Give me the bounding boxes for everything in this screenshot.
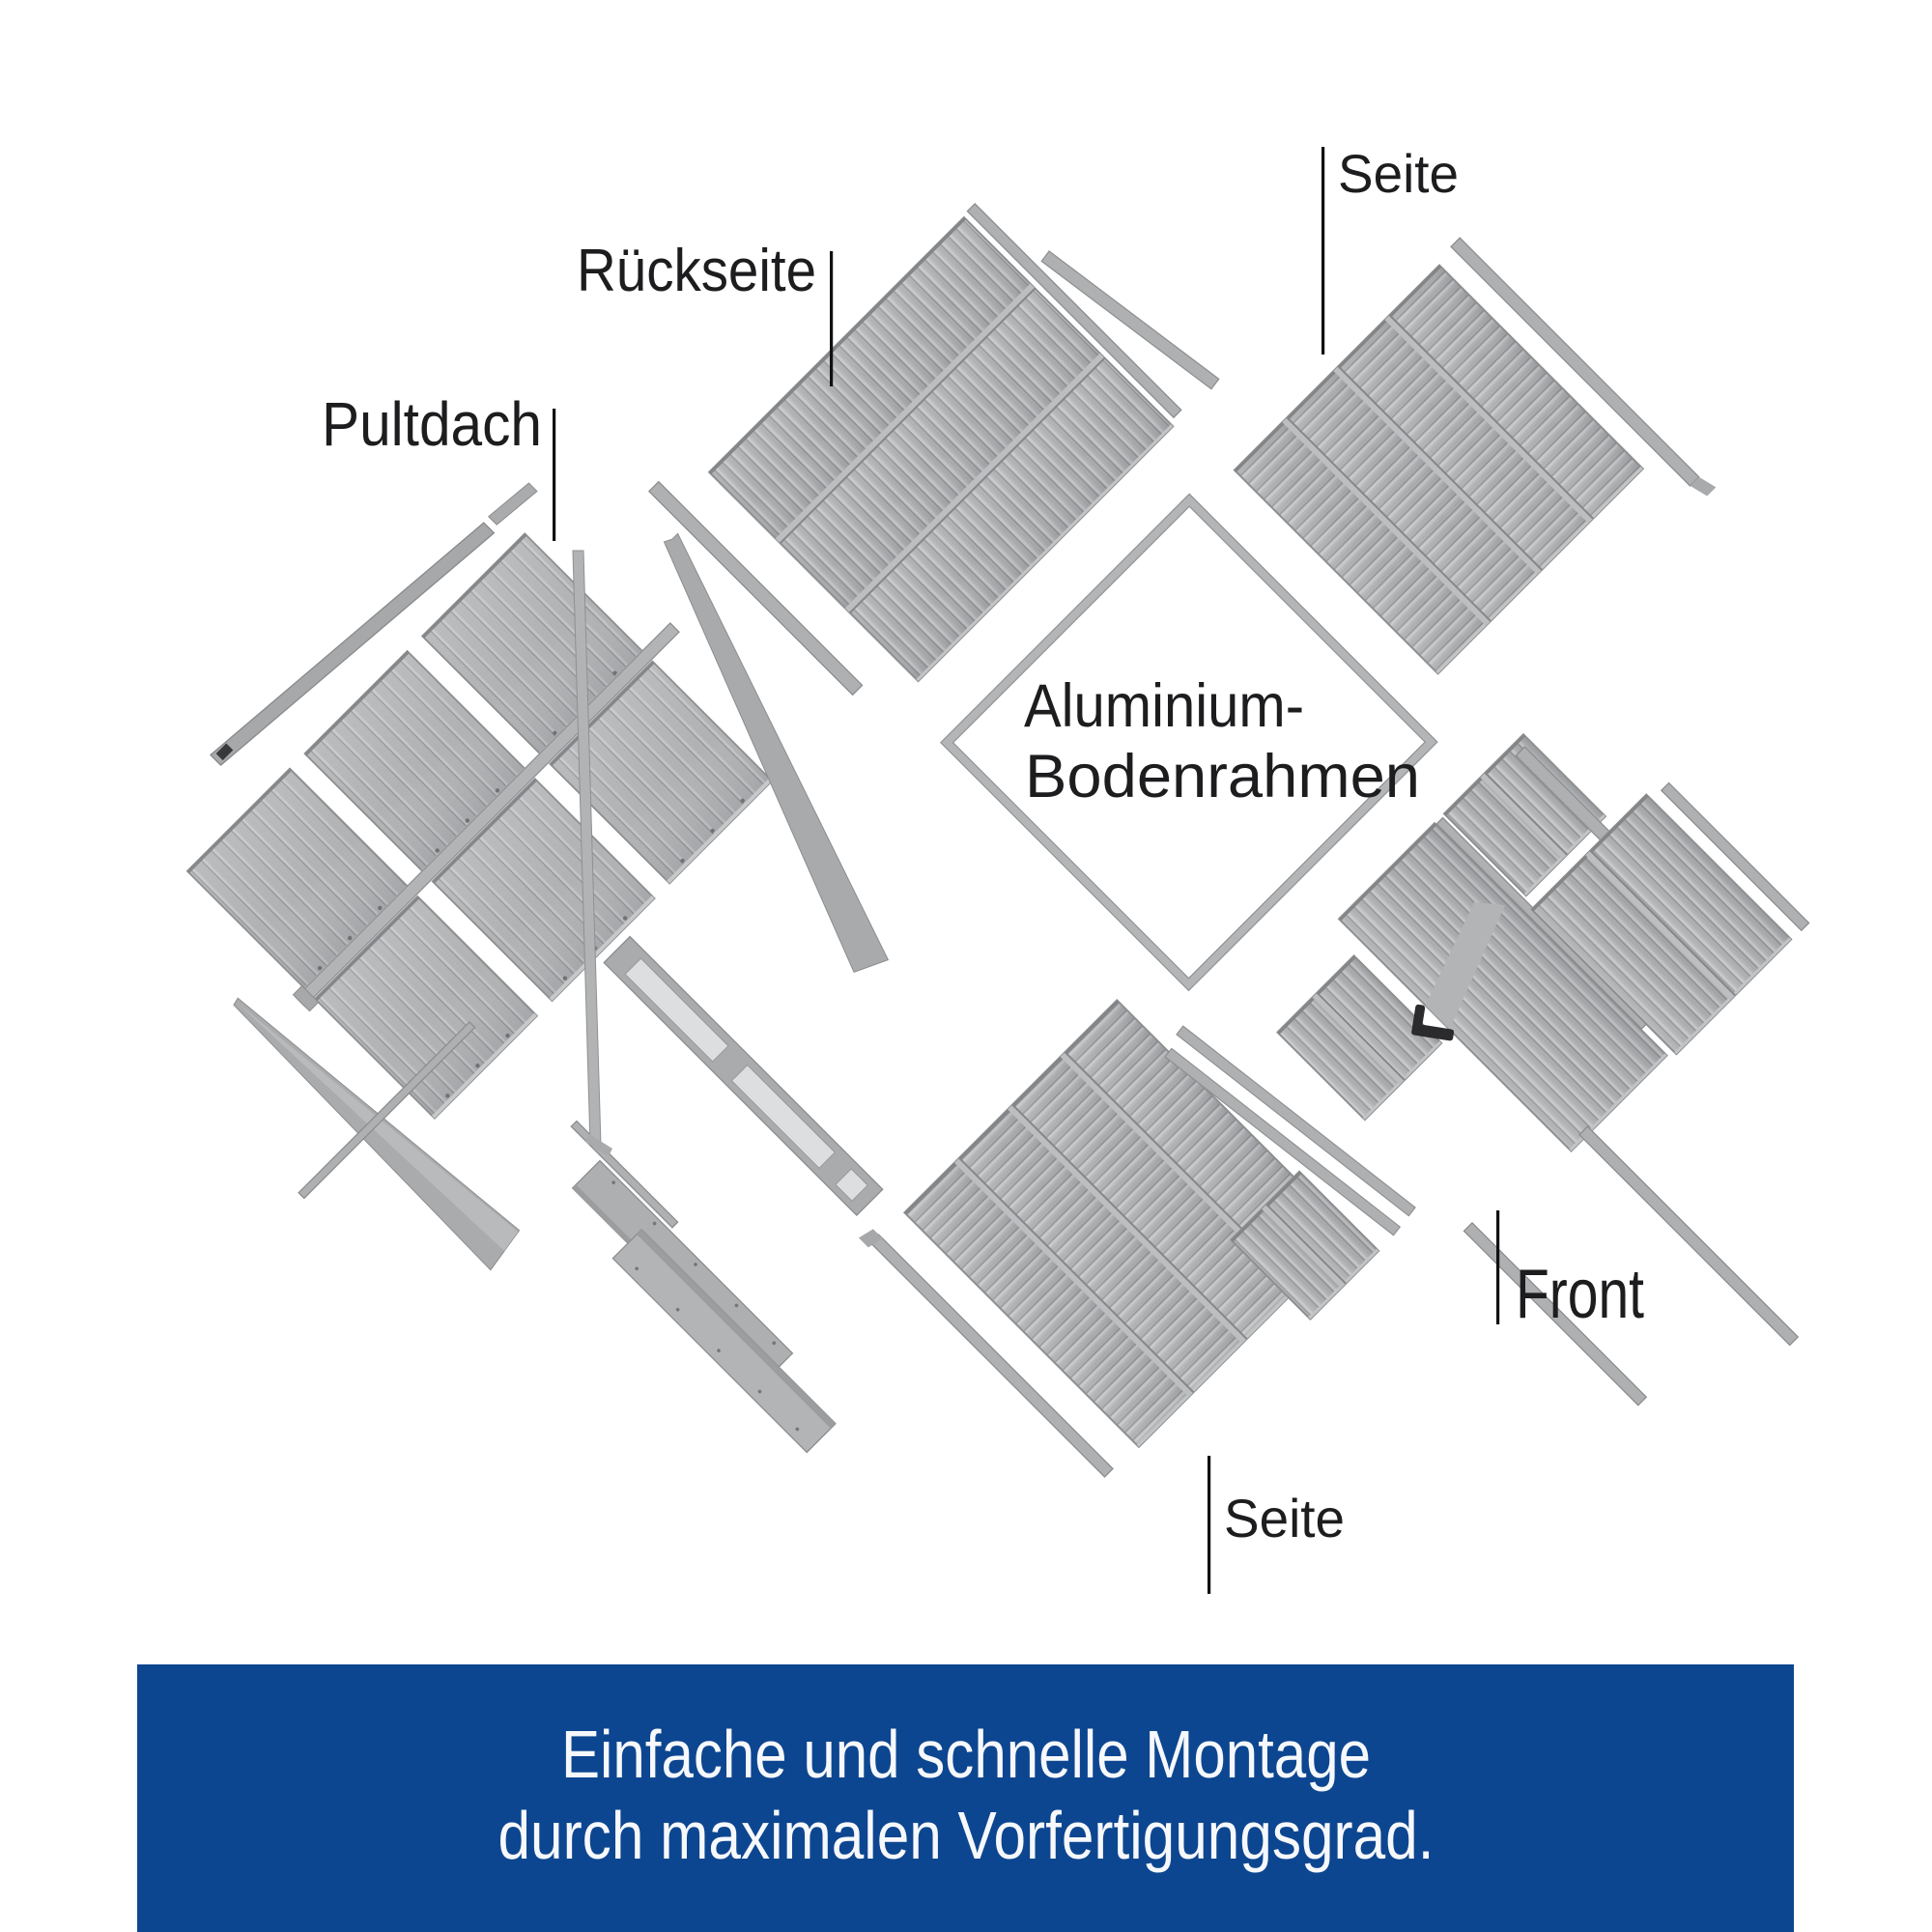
svg-text:Bodenrahmen: Bodenrahmen (1025, 743, 1420, 810)
svg-text:Front: Front (1516, 1256, 1644, 1333)
svg-text:Seite: Seite (1338, 143, 1459, 204)
svg-text:Aluminium-: Aluminium- (1024, 672, 1304, 740)
svg-text:Pultdach: Pultdach (322, 389, 542, 459)
svg-text:Seite: Seite (1224, 1488, 1345, 1548)
svg-text:durch maximalen Vorfertigungsg: durch maximalen Vorfertigungsgrad. (498, 1798, 1435, 1873)
svg-text:Einfache und schnelle Montage: Einfache und schnelle Montage (561, 1717, 1371, 1792)
svg-text:Rückseite: Rückseite (577, 238, 816, 304)
